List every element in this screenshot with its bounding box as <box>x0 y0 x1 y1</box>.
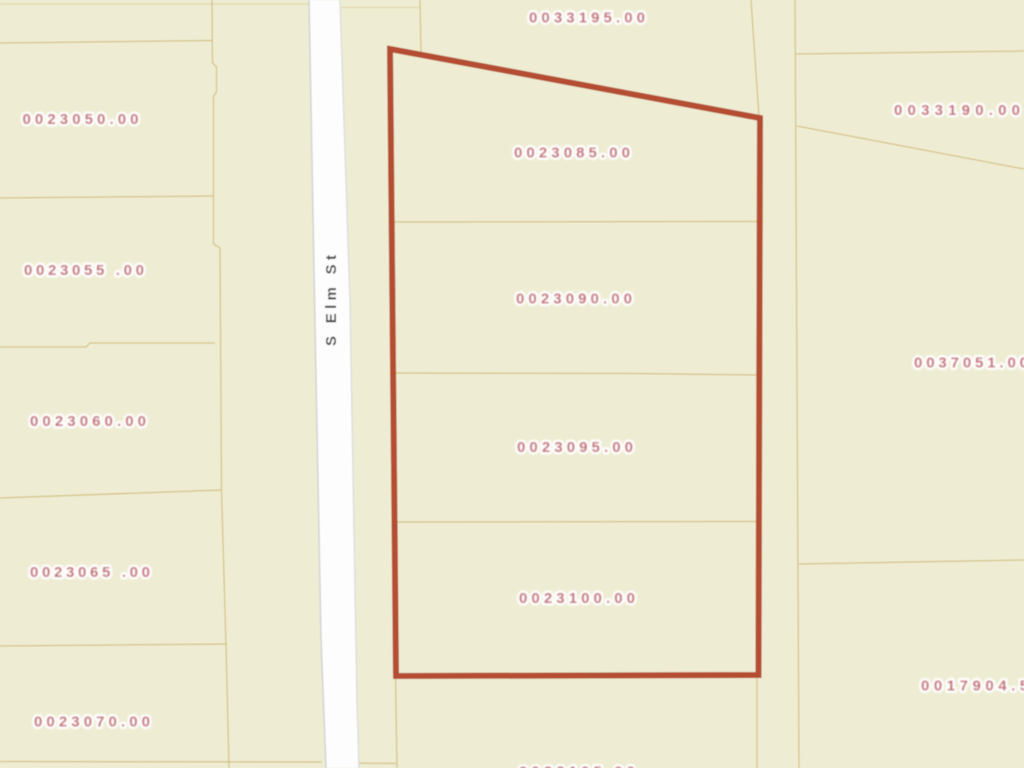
svg-text:0037051.00: 0037051.00 <box>914 355 1024 372</box>
svg-text:0023070.00: 0023070.00 <box>34 714 150 731</box>
svg-text:0023055 .00: 0023055 .00 <box>24 262 144 279</box>
svg-text:0023100.00: 0023100.00 <box>519 590 635 607</box>
svg-text:S Elm St: S Elm St <box>323 255 340 346</box>
svg-text:0023105.00: 0023105.00 <box>519 764 635 768</box>
svg-text:0023065 .00: 0023065 .00 <box>30 564 150 581</box>
svg-text:0023085.00: 0023085.00 <box>514 145 630 162</box>
svg-text:0023090.00: 0023090.00 <box>516 291 632 308</box>
svg-text:0023095.00: 0023095.00 <box>517 439 633 456</box>
svg-text:0033195.00: 0033195.00 <box>529 10 645 27</box>
svg-text:0023050.00: 0023050.00 <box>23 111 139 128</box>
svg-text:0023060.00: 0023060.00 <box>30 413 146 430</box>
